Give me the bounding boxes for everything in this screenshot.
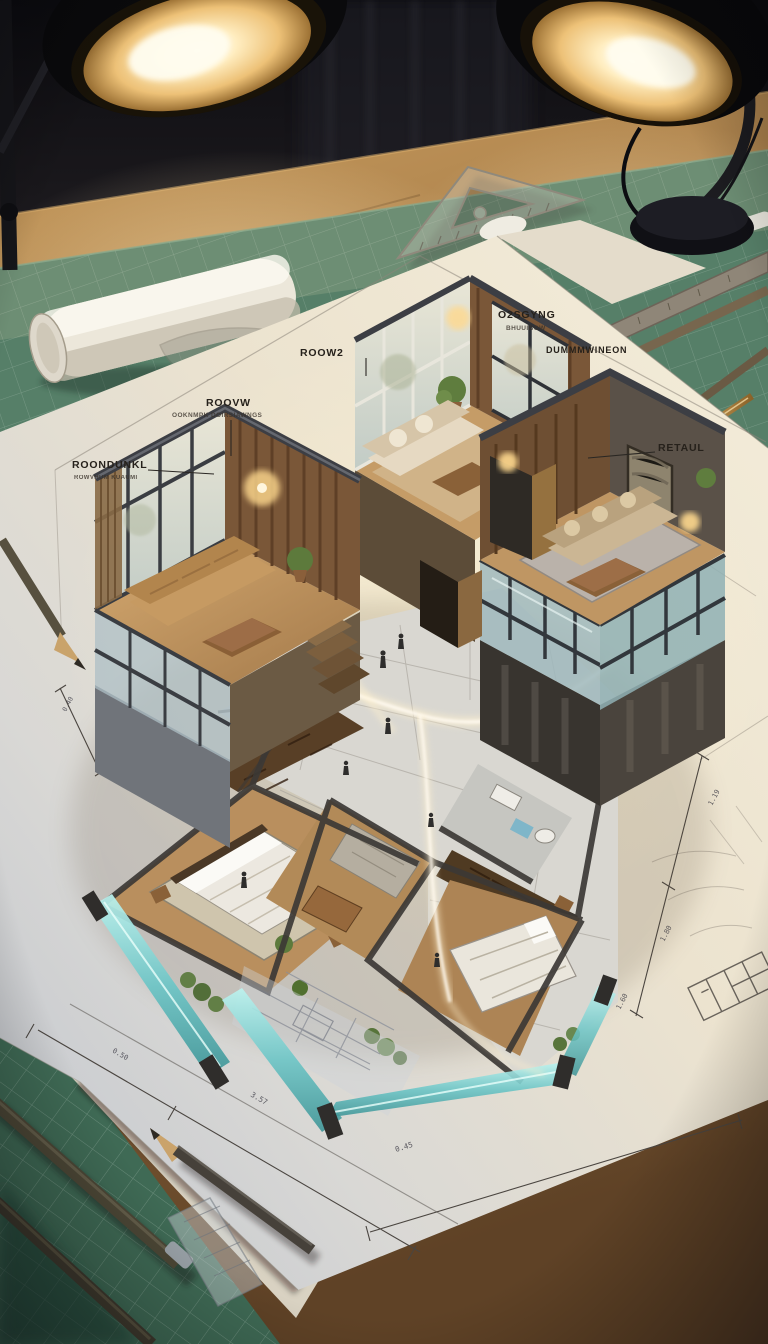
vignette-overlay <box>0 0 768 1344</box>
photo-canvas: 0.50 3.57 0.45 1.19 1.80 1.60 0.40 <box>0 0 768 1344</box>
scene-illustration: 0.50 3.57 0.45 1.19 1.80 1.60 0.40 <box>0 0 768 1344</box>
